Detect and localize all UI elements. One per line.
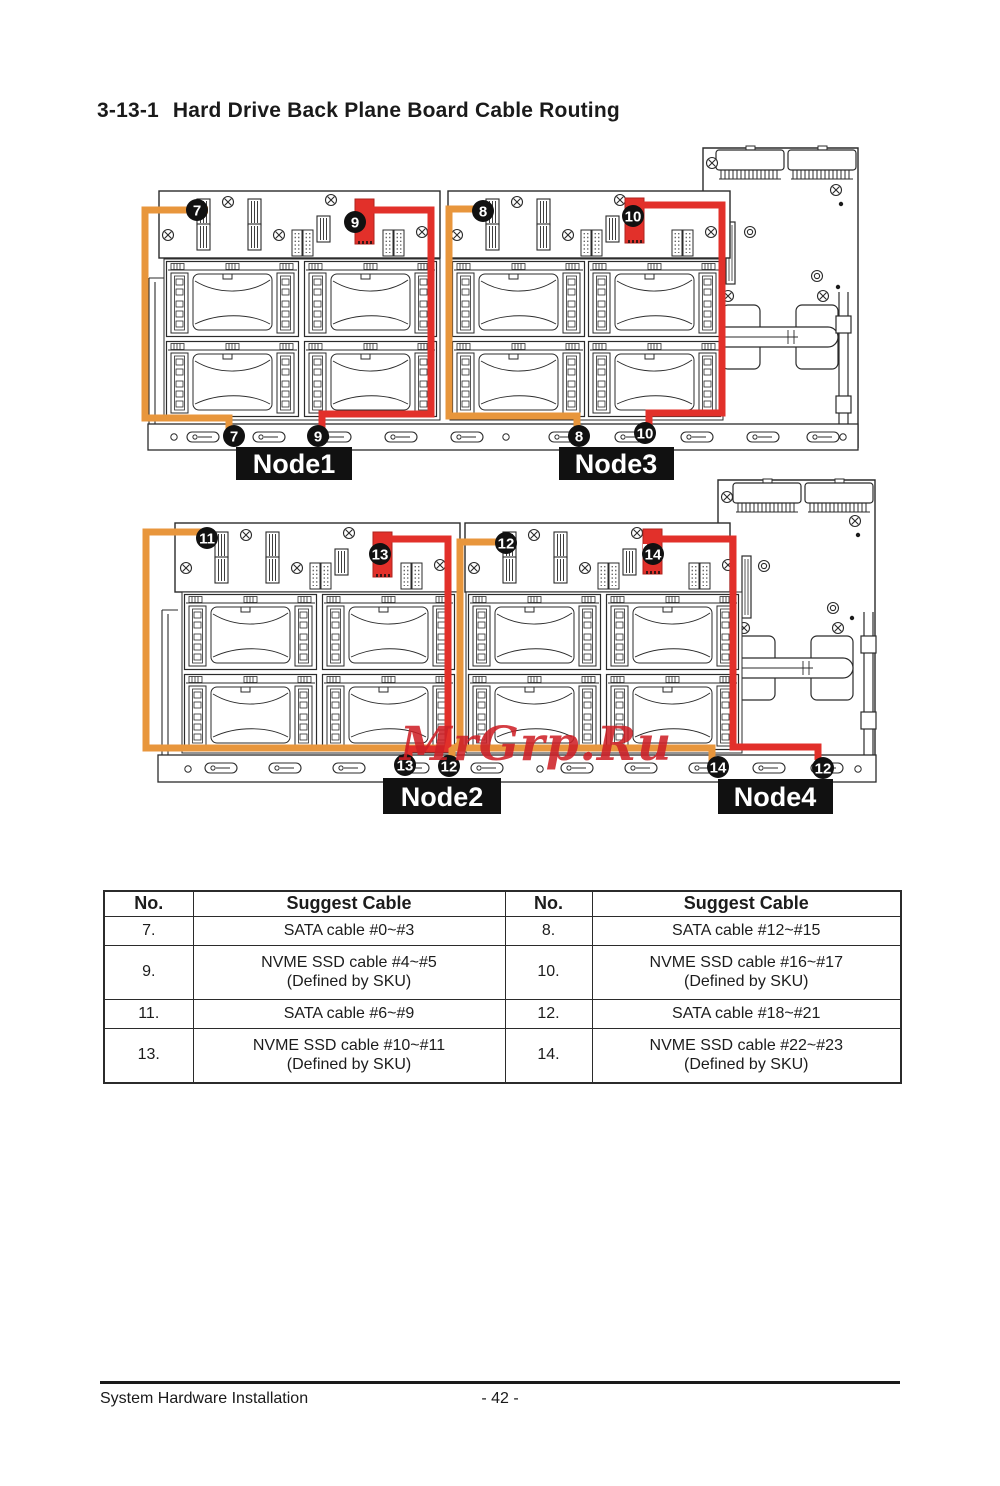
callout-9-bottom: 9 xyxy=(307,425,329,447)
node1-drive-bays xyxy=(164,259,440,420)
cell-no: 7. xyxy=(104,917,193,946)
callout-12b-bottom: 12 xyxy=(812,757,834,779)
cell-cable: NVME SSD cable #22~#23(Defined by SKU) xyxy=(592,1029,901,1084)
svg-text:Node4: Node4 xyxy=(734,782,817,812)
footer-document-title: System Hardware Installation xyxy=(100,1390,308,1408)
svg-text:14: 14 xyxy=(710,759,727,776)
svg-text:12: 12 xyxy=(815,760,832,777)
callout-13-top: 13 xyxy=(369,543,391,565)
callout-8-top: 8 xyxy=(472,200,494,222)
node3-drive-bays xyxy=(450,259,723,420)
callout-11-top: 11 xyxy=(196,527,218,549)
callout-10-top: 10 xyxy=(622,205,644,227)
callout-7-top: 7 xyxy=(186,199,208,221)
header-cable-left: Suggest Cable xyxy=(193,891,505,917)
callout-12-top: 12 xyxy=(495,532,517,554)
node3-label: Node3 xyxy=(559,447,674,480)
cell-no: 10. xyxy=(505,946,592,1000)
svg-text:8: 8 xyxy=(479,203,487,220)
bottom-rail xyxy=(148,424,858,450)
cell-no: 12. xyxy=(505,1000,592,1029)
svg-text:Node1: Node1 xyxy=(253,449,336,479)
diagram-top: 7 9 8 10 7 9 8 10 Node1 Node3 xyxy=(145,146,858,480)
table-row: 13. NVME SSD cable #10~#11(Defined by SK… xyxy=(104,1029,901,1084)
svg-text:14: 14 xyxy=(645,546,662,563)
cell-no: 8. xyxy=(505,917,592,946)
callout-14-top: 14 xyxy=(642,543,664,565)
callout-14-bottom: 14 xyxy=(707,756,729,778)
table-row: 9. NVME SSD cable #4~#5(Defined by SKU) … xyxy=(104,946,901,1000)
node1-label: Node1 xyxy=(236,447,352,480)
cell-cable: SATA cable #6~#9 xyxy=(193,1000,505,1029)
svg-text:Node2: Node2 xyxy=(401,782,484,812)
latch-arm xyxy=(727,636,853,700)
svg-text:8: 8 xyxy=(575,428,583,445)
node2-label: Node2 xyxy=(383,778,501,814)
svg-text:Node3: Node3 xyxy=(575,449,658,479)
table-row: 7. SATA cable #0~#3 8. SATA cable #12~#1… xyxy=(104,917,901,946)
header-no-right: No. xyxy=(505,891,592,917)
callout-10-bottom: 10 xyxy=(634,422,656,444)
cell-cable: SATA cable #0~#3 xyxy=(193,917,505,946)
table-header-row: No. Suggest Cable No. Suggest Cable xyxy=(104,891,901,917)
svg-text:9: 9 xyxy=(351,214,359,231)
header-cable-right: Suggest Cable xyxy=(592,891,901,917)
cell-no: 11. xyxy=(104,1000,193,1029)
watermark: MrGrp.Ru xyxy=(400,717,672,772)
header-no-left: No. xyxy=(104,891,193,917)
svg-text:7: 7 xyxy=(230,428,238,445)
svg-text:7: 7 xyxy=(193,202,201,219)
svg-text:9: 9 xyxy=(314,428,322,445)
node4-label: Node4 xyxy=(718,779,833,814)
svg-text:10: 10 xyxy=(625,208,642,225)
footer: System Hardware Installation - 42 - xyxy=(100,1390,900,1408)
cell-no: 9. xyxy=(104,946,193,1000)
cell-cable: NVME SSD cable #10~#11(Defined by SKU) xyxy=(193,1029,505,1084)
cell-cable: NVME SSD cable #4~#5(Defined by SKU) xyxy=(193,946,505,1000)
svg-text:10: 10 xyxy=(637,425,654,442)
cell-no: 14. xyxy=(505,1029,592,1084)
table-row: 11. SATA cable #6~#9 12. SATA cable #18~… xyxy=(104,1000,901,1029)
callout-9-top: 9 xyxy=(344,211,366,233)
cell-no: 13. xyxy=(104,1029,193,1084)
cell-cable: NVME SSD cable #16~#17(Defined by SKU) xyxy=(592,946,901,1000)
svg-text:11: 11 xyxy=(199,530,215,547)
cell-cable: SATA cable #18~#21 xyxy=(592,1000,901,1029)
callout-7-bottom: 7 xyxy=(223,425,245,447)
cell-cable: SATA cable #12~#15 xyxy=(592,917,901,946)
svg-text:13: 13 xyxy=(372,546,389,563)
svg-text:12: 12 xyxy=(498,535,515,552)
cable-table: No. Suggest Cable No. Suggest Cable 7. S… xyxy=(103,890,902,1084)
latch-arm xyxy=(712,305,838,369)
footer-rule xyxy=(100,1381,900,1384)
callout-8-bottom: 8 xyxy=(568,425,590,447)
